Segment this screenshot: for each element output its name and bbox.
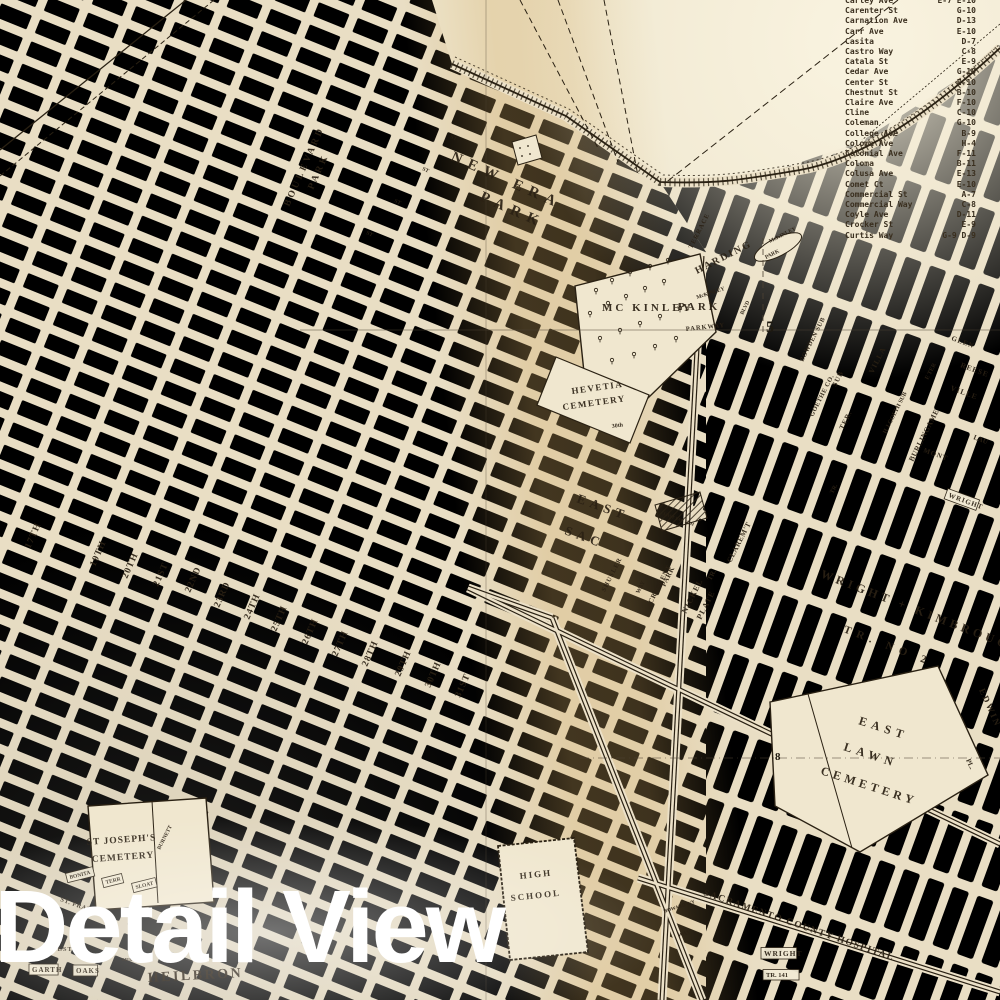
grid-ref: G-9 D-9 bbox=[942, 231, 976, 241]
street-index-row: Commercial StA-7 bbox=[808, 190, 1000, 200]
map-viewport[interactable]: NEW ERAPARKBOULEVARDPARKMC KINLEYPARKHAR… bbox=[0, 0, 1000, 1000]
grid-ref: G-10 bbox=[957, 67, 976, 77]
street-index-row: Coloma AveH-4 bbox=[808, 139, 1000, 149]
street-index-row: Curtis WayG-9 D-9 bbox=[808, 231, 1000, 241]
street-index-row: Carnation AveD-13 bbox=[808, 16, 1000, 26]
street-name: Crocker St bbox=[845, 220, 893, 230]
street-name: Chestnut St bbox=[845, 88, 898, 98]
grid-ref: D-11 bbox=[957, 210, 976, 220]
street-name: Casita bbox=[845, 37, 874, 47]
street-index-row: ClineC-10 bbox=[808, 108, 1000, 118]
street-index-row: ColomaB-11 bbox=[808, 159, 1000, 169]
street-name: Cedar Ave bbox=[845, 67, 888, 77]
street-name: College Ave bbox=[845, 129, 898, 139]
grid-ref: E-13 bbox=[957, 169, 976, 179]
street-index-row: Claire AveF-10 bbox=[808, 98, 1000, 108]
street-name: Catala St bbox=[845, 57, 888, 67]
grid-ref: D-7 bbox=[962, 37, 976, 47]
street-index-row: Commercial WayC-8 bbox=[808, 200, 1000, 210]
street-name: Commercial St bbox=[845, 190, 908, 200]
street-name: Colusa Ave bbox=[845, 169, 893, 179]
street-index-row: Cedar AveG-10 bbox=[808, 67, 1000, 77]
street-index-row: Castro WayC-8 bbox=[808, 47, 1000, 57]
grid-ref: E-9 bbox=[962, 220, 976, 230]
street-name: Carr Ave bbox=[845, 27, 884, 37]
grid-ref: D-13 bbox=[957, 16, 976, 26]
street-name: Comet Ct bbox=[845, 180, 884, 190]
street-name: Carnation Ave bbox=[845, 16, 908, 26]
street-name: Curtis Way bbox=[845, 231, 893, 241]
grid-ref: C-8 bbox=[962, 47, 976, 57]
street-name: Coyle Ave bbox=[845, 210, 888, 220]
street-index-row: Center StE-10 bbox=[808, 78, 1000, 88]
street-index-row: Coyle AveD-11 bbox=[808, 210, 1000, 220]
street-index-row: Colusa AveE-13 bbox=[808, 169, 1000, 179]
street-name: Coloma bbox=[845, 159, 874, 169]
grid-ref: F-10 bbox=[957, 98, 976, 108]
street-name: Carenter St bbox=[845, 6, 898, 16]
grid-ref: G-10 bbox=[957, 6, 976, 16]
street-name: Colonial Ave bbox=[845, 149, 903, 159]
street-name: Cline bbox=[845, 108, 869, 118]
street-index-row: Chestnut StB-10 bbox=[808, 88, 1000, 98]
street-name: Claire Ave bbox=[845, 98, 893, 108]
street-name: Castro Way bbox=[845, 47, 893, 57]
street-name: Center St bbox=[845, 78, 888, 88]
grid-ref: E-9 bbox=[962, 57, 976, 67]
street-name: Coleman bbox=[845, 118, 879, 128]
grid-ref: E-10 bbox=[957, 27, 976, 37]
street-index-row: Comet CtE-10 bbox=[808, 180, 1000, 190]
street-index-row: Carr AveE-10 bbox=[808, 27, 1000, 37]
grid-ref: B-10 bbox=[957, 88, 976, 98]
grid-ref: B-11 bbox=[957, 159, 976, 169]
grid-ref: C-10 bbox=[957, 108, 976, 118]
grid-ref: F-11 bbox=[957, 149, 976, 159]
street-name: Coloma Ave bbox=[845, 139, 893, 149]
street-index-row: Colonial AveF-11 bbox=[808, 149, 1000, 159]
grid-ref: A-7 bbox=[962, 190, 976, 200]
grid-ref: E-10 bbox=[957, 78, 976, 88]
grid-ref: H-4 bbox=[962, 139, 976, 149]
street-index-row: CasitaD-7 bbox=[808, 37, 1000, 47]
street-index-row: ColemanG-10 bbox=[808, 118, 1000, 128]
street-index-row: Carenter StG-10 bbox=[808, 6, 1000, 16]
grid-ref: E-10 bbox=[957, 180, 976, 190]
grid-ref: G-10 bbox=[957, 118, 976, 128]
street-index-row: College AveB-9 bbox=[808, 129, 1000, 139]
grid-ref: B-9 bbox=[962, 129, 976, 139]
watermark-text: Detail View bbox=[0, 868, 503, 986]
street-name: Commercial Way bbox=[845, 200, 912, 210]
street-index-row: Catala StE-9 bbox=[808, 57, 1000, 67]
street-index: Carley AveE-7 E-10Carenter StG-10Carnati… bbox=[808, 0, 1000, 240]
grid-ref: C-8 bbox=[962, 200, 976, 210]
street-index-row: Crocker StE-9 bbox=[808, 220, 1000, 230]
